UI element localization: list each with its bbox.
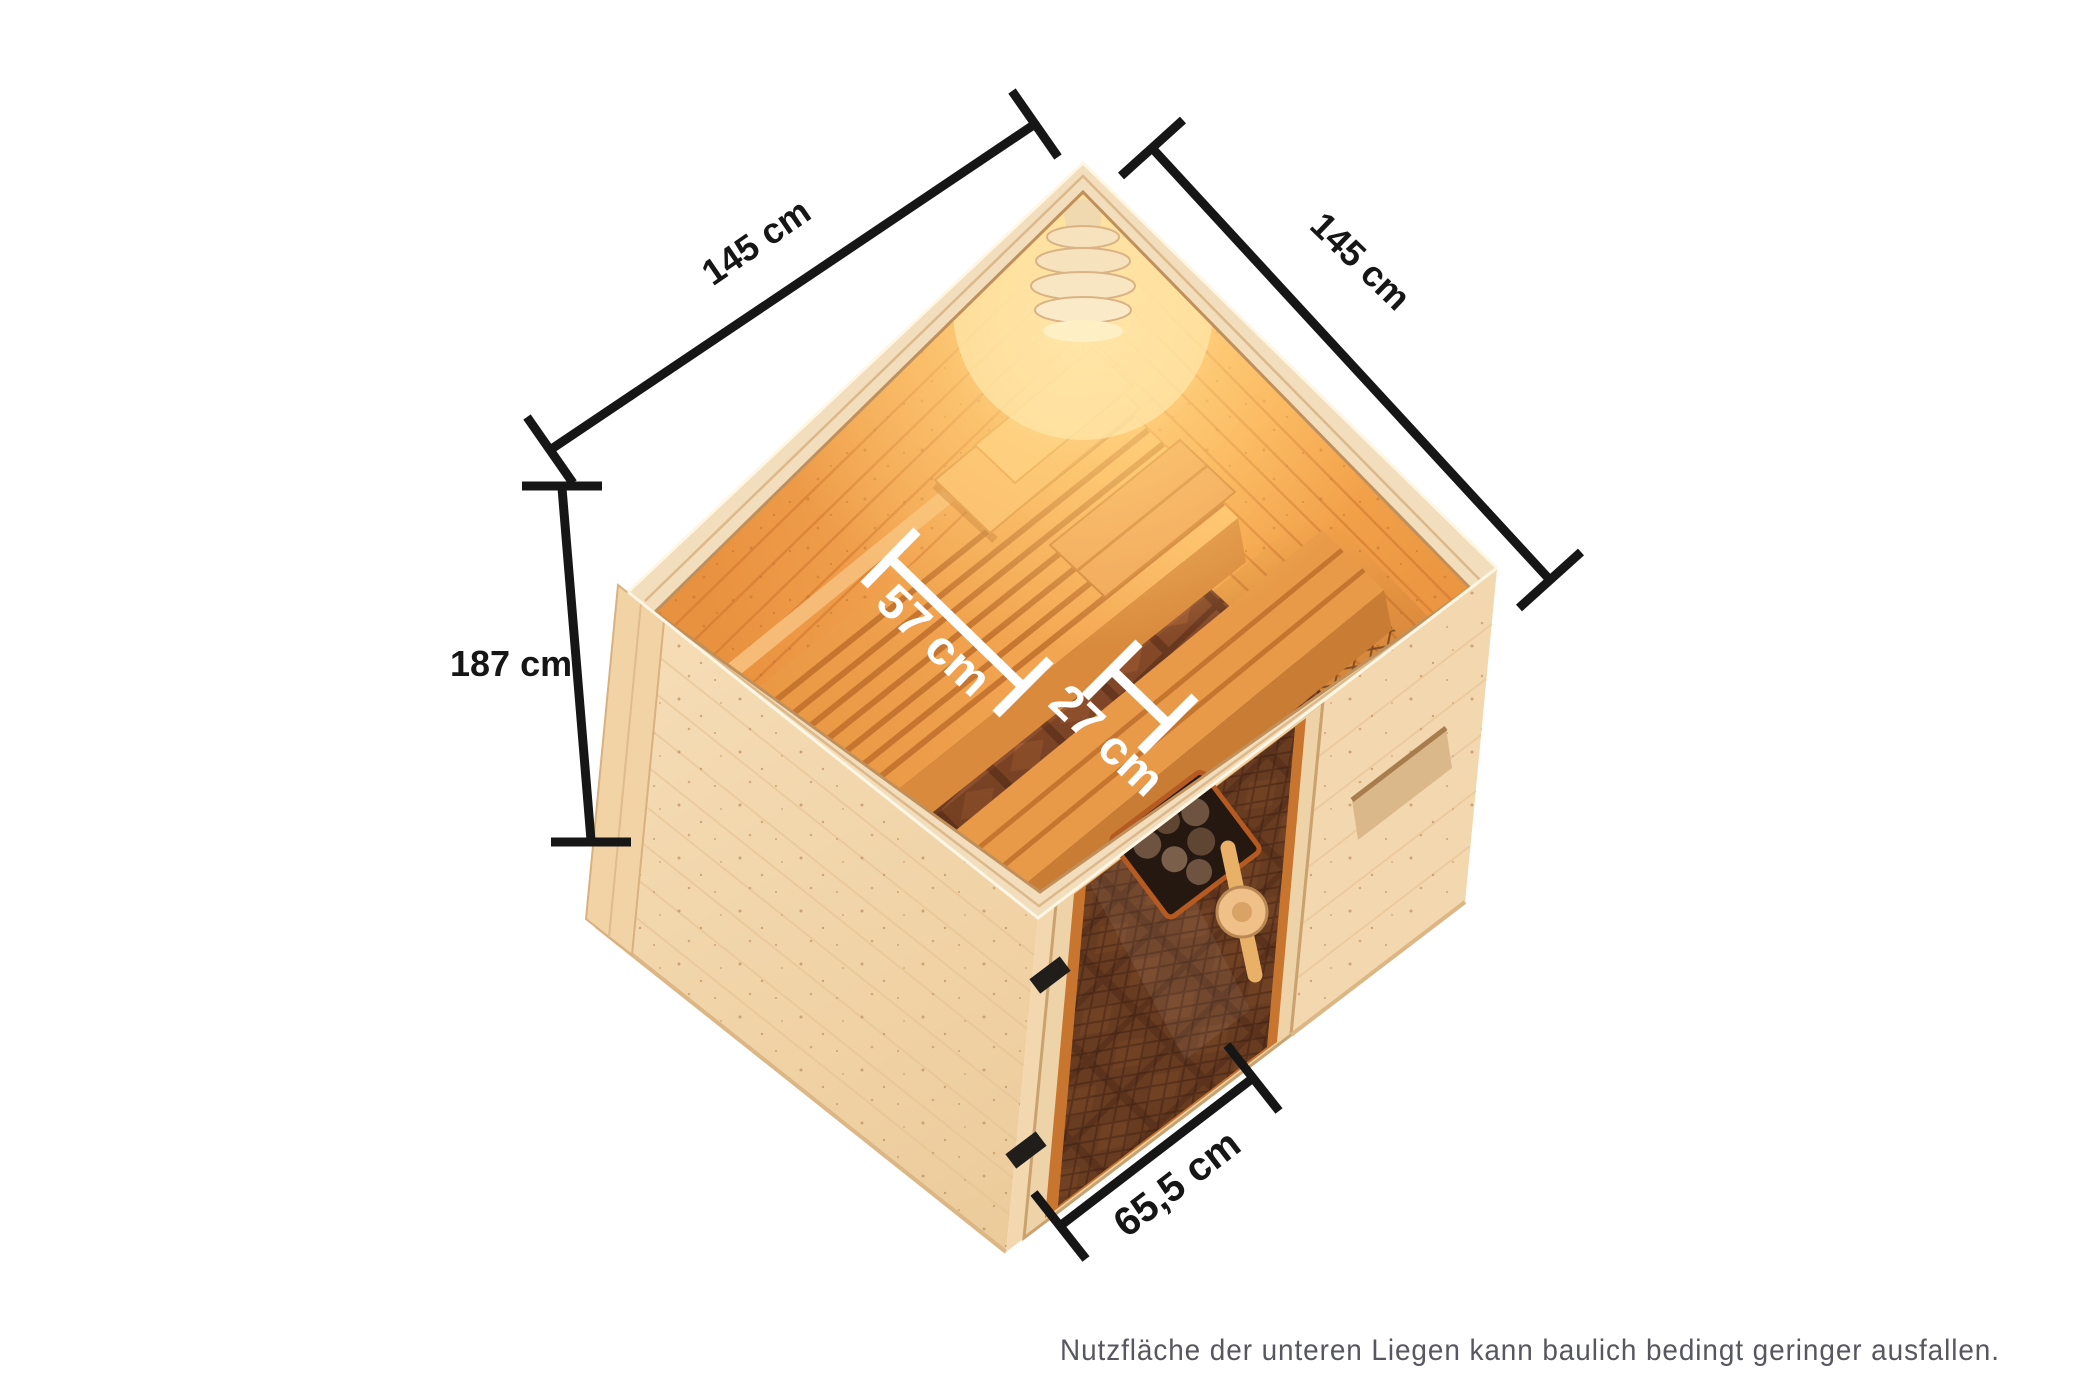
- sauna-dimension-illustration: 145 cm 145 cm 187 cm 57 cm 27 cm 65,5 cm: [0, 0, 2100, 1400]
- product-dimension-diagram: 145 cm 145 cm 187 cm 57 cm 27 cm 65,5 cm…: [0, 0, 2100, 1400]
- footnote: Nutzfläche der unteren Liegen kann bauli…: [1060, 1334, 2000, 1368]
- label-width-right: 145 cm: [1303, 204, 1419, 318]
- label-height: 187 cm: [450, 643, 572, 684]
